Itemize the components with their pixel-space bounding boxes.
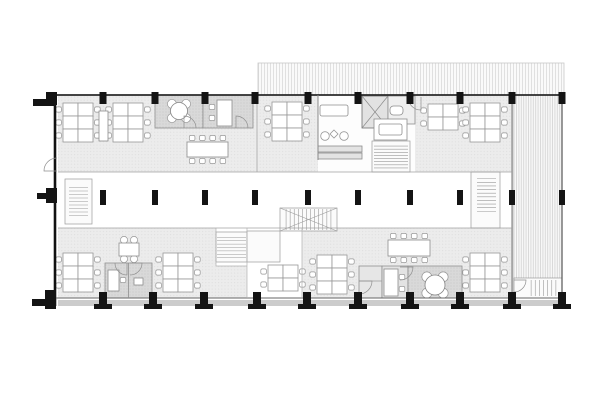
cabinet	[99, 111, 108, 141]
counter-2	[318, 153, 362, 159]
floor-plan-svg	[0, 0, 605, 400]
stair-central-lower	[216, 232, 247, 262]
stair-west	[65, 179, 92, 224]
round-table-meeting-c	[422, 272, 448, 298]
lounge-chair	[340, 132, 349, 141]
stair-landing	[247, 231, 280, 262]
stair-exit	[514, 278, 562, 298]
stair-central-upper	[280, 208, 337, 231]
kitchen-island	[379, 124, 402, 135]
floor-plan	[0, 0, 605, 400]
terrace-hatch-east	[513, 95, 562, 298]
booth-desk	[108, 270, 119, 291]
desk-cluster-s-center	[261, 265, 305, 291]
stair-core	[372, 141, 410, 172]
lounge-chair	[321, 132, 330, 141]
floor-lower-center	[216, 266, 247, 298]
phone-desk	[384, 269, 398, 296]
booth-table	[134, 278, 143, 285]
sofa	[320, 105, 348, 116]
toilet	[390, 106, 403, 115]
round-table-meeting-a	[167, 99, 190, 122]
counter-1	[318, 146, 362, 152]
roof-hatch-top	[258, 63, 564, 95]
stair-east	[471, 172, 500, 228]
wc-cell	[359, 266, 382, 298]
room-b-desk	[217, 100, 232, 126]
